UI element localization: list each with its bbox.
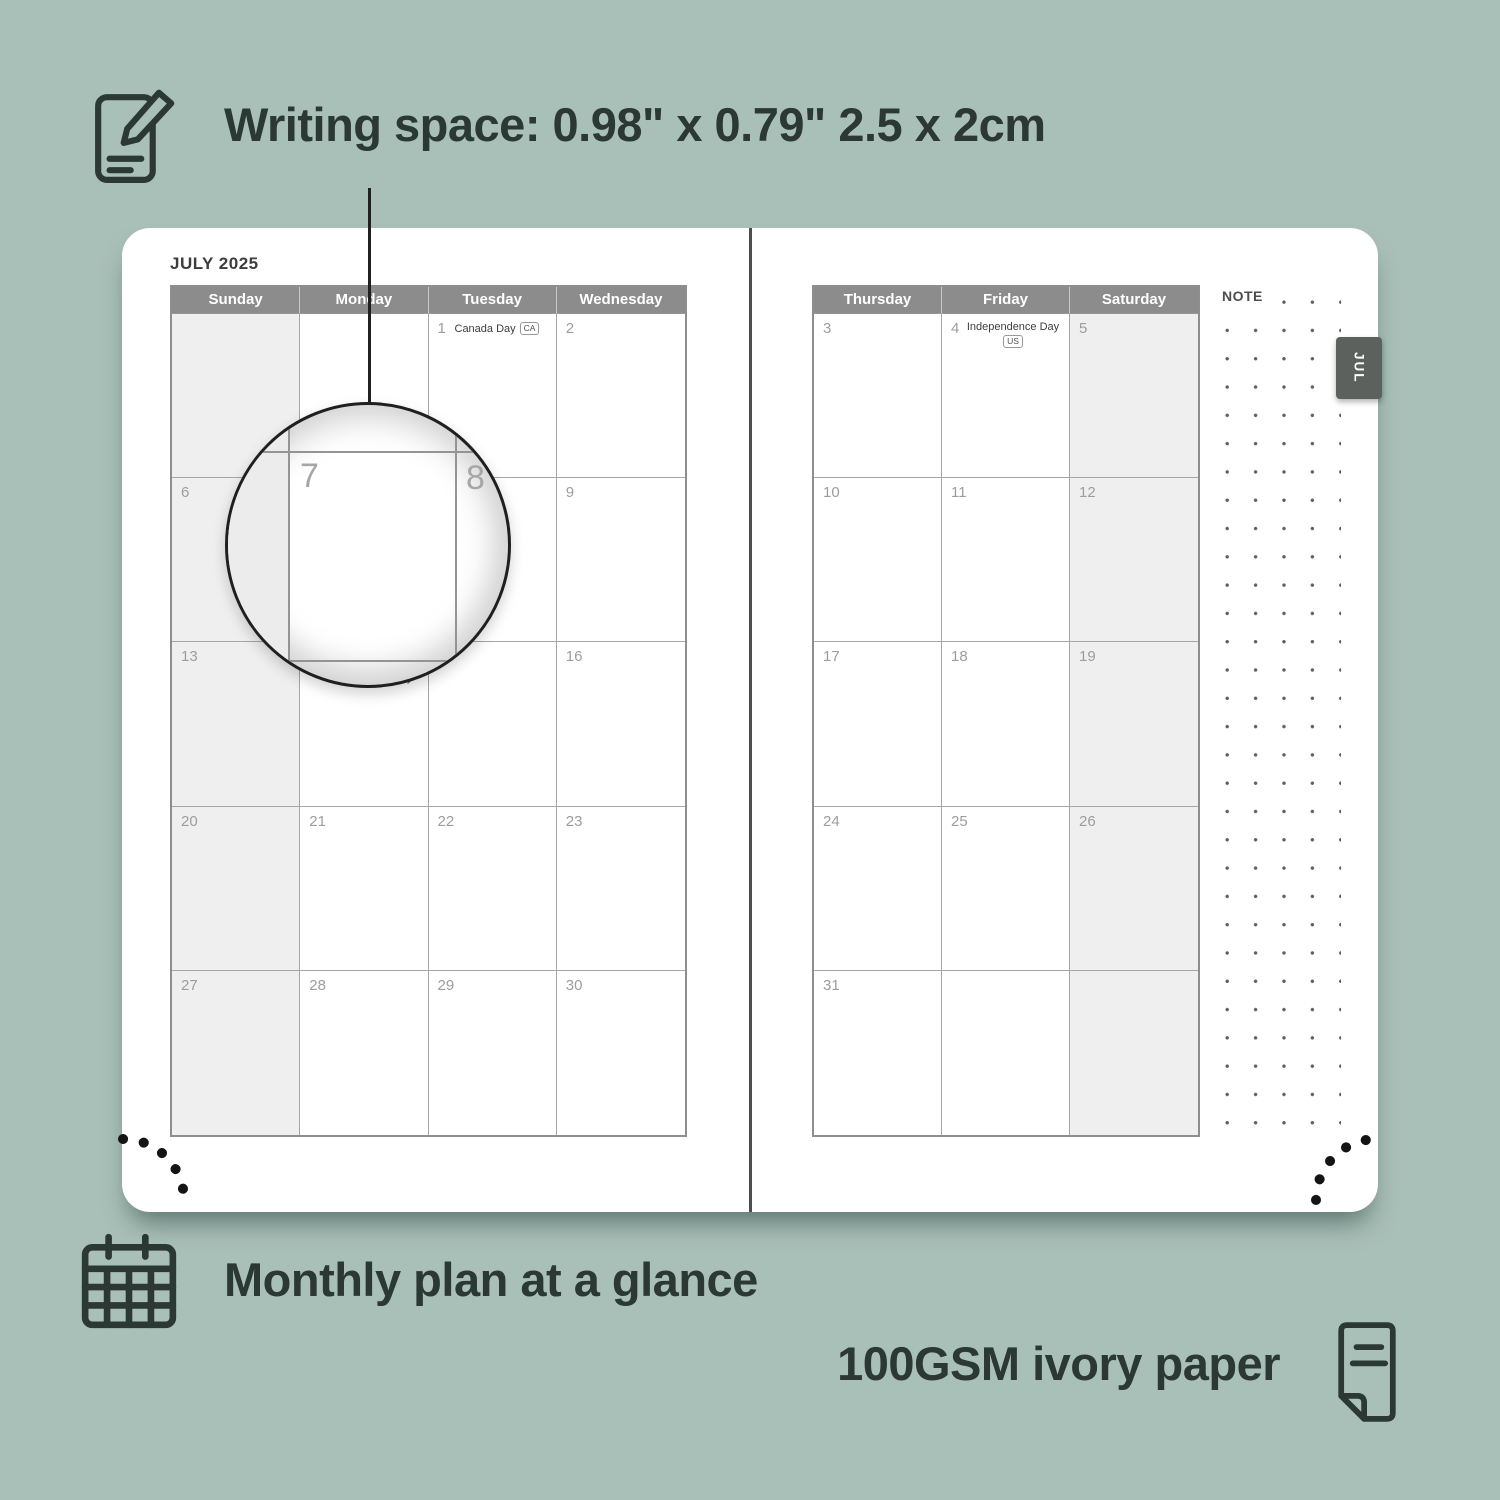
calendar-cell: 26 — [1070, 807, 1198, 971]
holiday-label: Canada Day CA — [455, 322, 540, 335]
calendar-cell: 16 — [557, 642, 685, 806]
note-dot-grid — [1213, 288, 1341, 1137]
calendar-cell: 19 — [1070, 642, 1198, 806]
day-number: 26 — [1079, 813, 1096, 830]
day-header-saturday: Saturday — [1070, 287, 1198, 314]
calendar-cell: 3 — [814, 314, 942, 478]
calendar-cell: 18 — [942, 642, 1070, 806]
holiday-label: Independence Day US — [960, 321, 1066, 348]
day-number: 2 — [566, 320, 574, 337]
calendar-cell: 31 — [814, 971, 942, 1135]
note-pencil-icon — [92, 84, 180, 186]
day-number: 1 — [438, 320, 446, 337]
day-number: 13 — [181, 648, 198, 665]
day-number: 12 — [1079, 484, 1096, 501]
day-number: 30 — [566, 977, 583, 994]
day-number: 20 — [181, 813, 198, 830]
notebook-spine — [749, 228, 752, 1212]
calendar-cell: 24 — [814, 807, 942, 971]
calendar-cell: 28 — [300, 971, 428, 1135]
month-title: JULY 2025 — [170, 254, 259, 274]
lens-grid-line — [228, 451, 508, 453]
day-header-thursday: Thursday — [814, 287, 942, 314]
calendar-icon — [78, 1230, 180, 1332]
calendar-cell: 23 — [557, 807, 685, 971]
month-tab-label: JUL — [1352, 352, 1367, 384]
writing-space-caption: Writing space: 0.98" x 0.79" 2.5 x 2cm — [224, 97, 1046, 152]
day-number: 11 — [951, 484, 967, 501]
day-number: 5 — [1079, 320, 1087, 337]
calendar-cell: 12 — [1070, 478, 1198, 642]
holiday-country-badge: CA — [520, 322, 540, 335]
calendar-cell: 17 — [814, 642, 942, 806]
monthly-plan-caption: Monthly plan at a glance — [224, 1252, 758, 1307]
day-number: 16 — [566, 648, 583, 665]
day-number: 25 — [951, 813, 968, 830]
calendar-cell: 21 — [300, 807, 428, 971]
lens-shaded-column — [228, 405, 288, 685]
calendar-cell: 27 — [172, 971, 300, 1135]
lens-grid-line — [228, 660, 508, 662]
calendar-cell: 22 — [429, 807, 557, 971]
calendar-cell: 5 — [1070, 314, 1198, 478]
day-header-monday: Monday — [300, 287, 428, 314]
day-number: 3 — [823, 320, 831, 337]
calendar-cell — [942, 971, 1070, 1135]
calendar-cell: 9 — [557, 478, 685, 642]
lens-day-number: 8 — [466, 459, 485, 498]
day-number: 6 — [181, 484, 189, 501]
day-number: 29 — [438, 977, 455, 994]
day-number: 27 — [181, 977, 198, 994]
day-header-sunday: Sunday — [172, 287, 300, 314]
magnifier-lens: 7 8 — [225, 402, 511, 688]
day-header-wednesday: Wednesday — [557, 287, 685, 314]
paper-caption: 100GSM ivory paper — [837, 1336, 1280, 1391]
callout-pointer-line — [368, 188, 371, 405]
lens-grid-line — [455, 405, 457, 685]
calendar-cell: 15 — [429, 642, 557, 806]
calendar-right-page: Thursday Friday Saturday 3 4 Independenc… — [812, 285, 1200, 1137]
calendar-cell: 2 — [557, 314, 685, 478]
calendar-cell — [1070, 971, 1198, 1135]
month-tab-jul: JUL — [1336, 337, 1382, 399]
calendar-cell: 11 — [942, 478, 1070, 642]
day-number: 9 — [566, 484, 574, 501]
day-number: 10 — [823, 484, 840, 501]
note-label: NOTE — [1222, 288, 1273, 307]
calendar-cell: 30 — [557, 971, 685, 1135]
calendar-cell: 20 — [172, 807, 300, 971]
paper-icon — [1324, 1316, 1410, 1428]
calendar-cell: 29 — [429, 971, 557, 1135]
lens-day-number: 7 — [300, 457, 319, 496]
lens-grid-line — [288, 405, 290, 685]
day-number: 24 — [823, 813, 840, 830]
day-number: 17 — [823, 648, 840, 665]
calendar-cell: 25 — [942, 807, 1070, 971]
day-header-tuesday: Tuesday — [429, 287, 557, 314]
holiday-country-badge: US — [1003, 335, 1023, 348]
day-number: 18 — [951, 648, 968, 665]
day-number: 28 — [309, 977, 326, 994]
day-number: 31 — [823, 977, 840, 994]
day-number: 21 — [309, 813, 326, 830]
calendar-cell: 10 — [814, 478, 942, 642]
calendar-cell: 4 Independence Day US — [942, 314, 1070, 478]
day-number: 4 — [951, 320, 959, 337]
day-number: 22 — [438, 813, 455, 830]
holiday-text: Canada Day — [455, 323, 516, 335]
day-header-friday: Friday — [942, 287, 1070, 314]
day-number: 19 — [1079, 648, 1096, 665]
holiday-text: Independence Day — [967, 321, 1059, 333]
day-number: 23 — [566, 813, 583, 830]
